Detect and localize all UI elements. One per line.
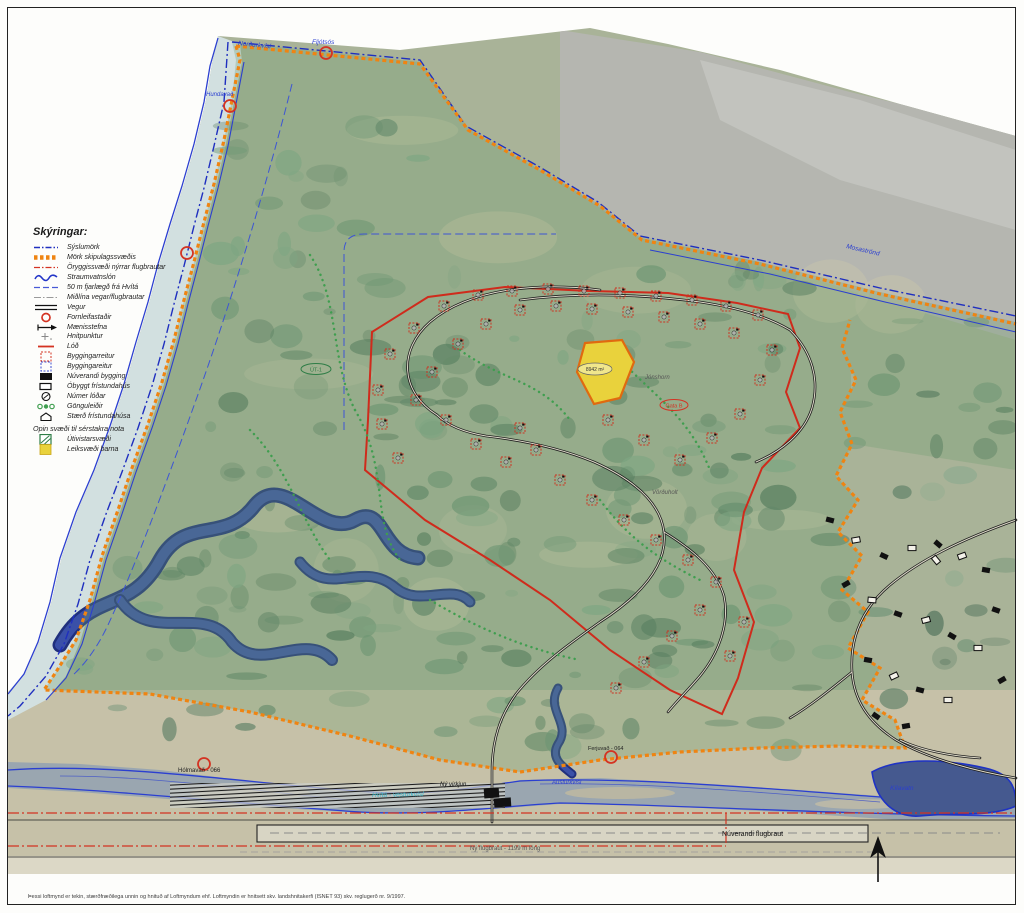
river-label-top: Fljótsós	[312, 39, 335, 46]
legend-item-gonguleidir: Gönguleiðir	[33, 401, 233, 411]
fine-print: Þessi loftmynd er tekin, stærðfræðilega …	[28, 894, 405, 900]
legend-item-numer-lodar: Númer lóðar	[33, 391, 233, 401]
legend-title: Skýringar:	[33, 226, 233, 238]
new-runway-label: Ný flugbraut - 1199 m löng	[470, 846, 540, 852]
river-label-left: Hundavað	[206, 92, 234, 98]
yellow-square-icon	[33, 444, 59, 455]
legend-item-hnitpunktur: Hnitpunktur	[33, 332, 233, 342]
legend-item-fornleifastadir: Fornleifastaðir	[33, 312, 233, 322]
legend-item-midlina: Miðlína vegar/flugbrautar	[33, 292, 233, 302]
road-tag: Gata B	[665, 404, 682, 410]
heritage-label-sw: Hólmavað - 066	[178, 767, 221, 774]
legend-item-lod: Lóð	[33, 342, 233, 352]
legend-item-leiksvaedi: Leiksvæði barna	[33, 445, 233, 455]
legend-item-vegur: Vegur	[33, 302, 233, 312]
legend-item-utivistarsvaedi: Útivistarsvæði	[33, 435, 233, 445]
legend-item-straumvatnslon: Straumvatnslón	[33, 273, 233, 283]
place-label-east: Jónshorn	[644, 375, 670, 381]
house-outline-icon	[33, 411, 59, 422]
heritage-label-s: Ferjuvað - 064	[588, 745, 623, 752]
legend-item-byggingarreitur: Byggingarreitur	[33, 352, 233, 362]
existing-runway-label: Núverandi flugbraut	[722, 831, 783, 838]
legend-item-maenisstefna: Mænisstefna	[33, 322, 233, 332]
playground-size-label: 8942 m²	[586, 367, 605, 373]
river-main-label: Hvítá - vesturkvísl	[372, 791, 424, 799]
legend-item-staerd-fristundahusa: Stærð frístundahúsa	[33, 411, 233, 421]
legend-item-mork-skipulags: Mörk skipulagssvæðis	[33, 253, 233, 263]
plan-map-sheet: 8942 m² Norðurkvísl Fljótsós	[0, 0, 1024, 913]
legend-item-syslumork: Sýslumörk	[33, 243, 233, 253]
legend-subheader: Opin svæði til sérstakra nota	[33, 424, 233, 433]
place-label-south: Vörðuholt	[652, 490, 678, 496]
map-canvas: 8942 m² Norðurkvísl Fljótsós	[0, 0, 1024, 913]
legend: Skýringar: Sýslumörk Mörk skipulagssvæði…	[33, 226, 233, 455]
open-area-tag: ÚT-1	[310, 367, 322, 374]
legend-item-byggingareitur: Byggingareitur	[33, 362, 233, 372]
new-plant-label: Ný virkjun	[440, 782, 467, 788]
legend-item-50m: 50 m fjarlægð frá Hvítá	[33, 283, 233, 293]
lake-label: Kílavatn	[890, 785, 914, 792]
legend-item-nuverandi-bygging: Núverandi bygging	[33, 372, 233, 382]
legend-item-obyggt-fristundahus: Óbyggt frístundahús	[33, 381, 233, 391]
river-branch-label: Austurkvísl	[551, 780, 582, 786]
legend-item-oryggissvaedi: Öryggissvæði nýrrar flugbrautar	[33, 263, 233, 273]
